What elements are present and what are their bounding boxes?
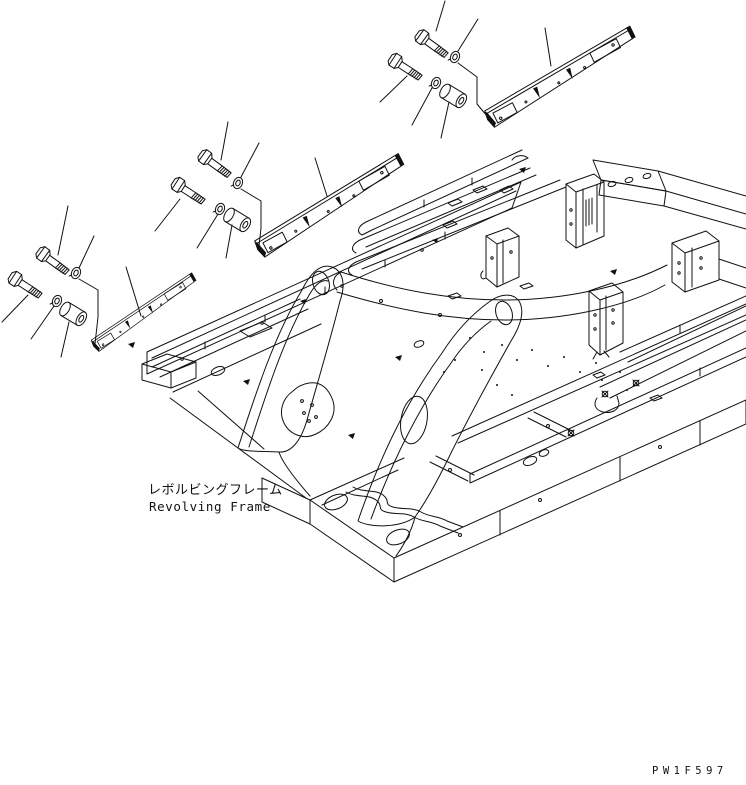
washer [448,50,461,64]
fastener-group-middle [155,122,407,258]
spacer [221,206,252,233]
cover-strip [90,272,199,353]
spacer [57,300,88,327]
fastener-group-left [2,206,199,357]
washer [50,294,63,308]
bracket-mid-left [481,228,519,287]
cover-strip [253,152,407,258]
leader-lines [2,206,141,357]
fastener-group-top [380,1,639,138]
right-rails [600,259,746,398]
parts-diagram-page: レボルビングフレーム Revolving Frame PW1F597 [0,0,746,785]
technical-drawing-svg: レボルビングフレーム Revolving Frame PW1F597 [0,0,746,785]
bolt [169,176,207,208]
frame-label-japanese: レボルビングフレーム [148,483,283,498]
bracket-mid-right [589,283,623,359]
deck-left [152,299,321,498]
bolt [386,52,424,84]
spacer [437,82,468,109]
washer [429,76,442,90]
bolt-hole-symbols [568,380,639,436]
washer [231,176,244,190]
revolving-frame-body [128,150,746,582]
bolt [6,270,44,302]
bolt [34,245,72,278]
bracket-rear-center [566,174,604,248]
cross-beam [334,265,667,349]
bolt [196,148,234,181]
leader-lines [380,1,551,138]
leader-lines [155,122,327,258]
cover-strip [483,24,639,128]
frame-label-english: Revolving Frame [149,499,271,514]
boom-mount-left-plate [238,266,343,496]
washer [69,266,82,280]
rear-beam-with-holes [593,160,746,229]
weld-marks [128,167,617,439]
bracket-right [672,231,719,292]
bolt [413,28,451,61]
drawing-code: PW1F597 [652,765,728,777]
base-pan [262,304,746,582]
